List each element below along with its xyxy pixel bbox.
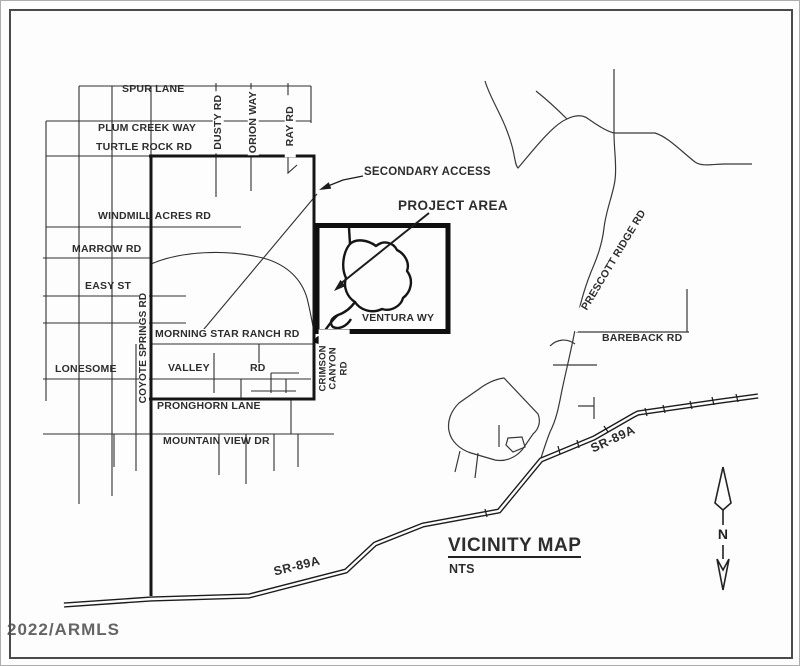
road-label-valley-rd-suffix: RD	[250, 363, 266, 374]
road-label-dusty-rd: DUSTY RD	[213, 91, 224, 153]
road-label-mountain-view-dr: MOUNTAIN VIEW DR	[163, 436, 270, 447]
road-label-pronghorn-lane: PRONGHORN LANE	[157, 401, 261, 412]
project-area-label: PROJECT AREA	[398, 199, 508, 213]
watermark: 2022/ARMLS	[7, 621, 120, 638]
access-diagonal	[199, 194, 317, 335]
vicinity-map-page: SPUR LANE PLUM CREEK WAY TURTLE ROCK RD …	[0, 0, 800, 666]
road-label-ray-rd: RAY RD	[285, 95, 296, 157]
road-label-crimson-canyon-rd: CRIMSON CANYON RD	[319, 329, 350, 407]
ventura-loop	[313, 228, 411, 346]
road-label-morning-star-ranch-rd: MORNING STAR RANCH RD	[154, 329, 301, 340]
road-label-ventura-wy: VENTURA WY	[361, 313, 435, 324]
north-arrow-fletching	[717, 559, 729, 590]
road-label-valley: VALLEY	[168, 363, 210, 374]
road-label-coyote-springs-rd: COYOTE SPRINGS RD	[139, 277, 149, 419]
road-label-easy-st: EASY ST	[85, 281, 131, 292]
north-letter: N	[715, 527, 731, 541]
north-arrow-head	[715, 467, 731, 510]
highway-sr89a	[64, 394, 758, 605]
secondary-access-leader	[328, 176, 363, 186]
road-label-orion-way: ORION WAY	[248, 89, 259, 155]
road-label-bareback-rd: BAREBACK RD	[602, 333, 682, 344]
road-label-plum-creek-way: PLUM CREEK WAY	[98, 123, 196, 134]
annotation-arrows	[319, 176, 429, 291]
secondary-access-label: SECONDARY ACCESS	[364, 167, 491, 179]
map-title: VICINITY MAP	[448, 536, 581, 558]
road-label-marrow-rd: MARROW RD	[72, 244, 141, 255]
highway-ticks	[485, 394, 738, 517]
road-label-turtle-rock-rd: TURTLE ROCK RD	[96, 142, 192, 153]
road-label-spur-lane: SPUR LANE	[122, 84, 184, 95]
wash-curve	[151, 252, 314, 332]
road-label-lonesome: LONESOME	[55, 364, 117, 375]
road-label-windmill-acres-rd: WINDMILL ACRES RD	[98, 211, 211, 222]
parcel-outline	[448, 378, 539, 461]
secondary-access-arrowhead	[319, 182, 331, 190]
map-scale-note: NTS	[449, 563, 475, 576]
